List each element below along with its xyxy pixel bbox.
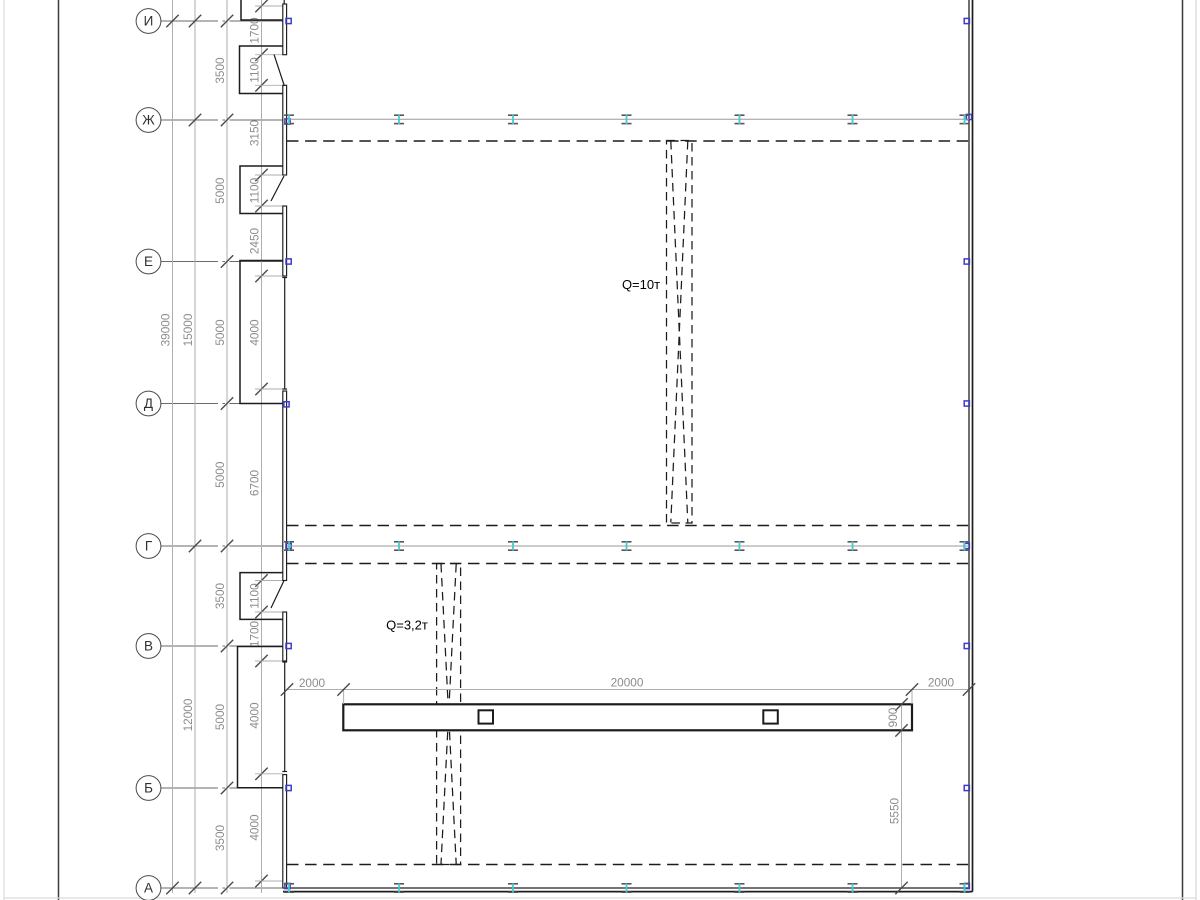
svg-text:И: И <box>144 14 154 29</box>
svg-text:Q=3,2т: Q=3,2т <box>386 618 428 633</box>
svg-text:2000: 2000 <box>299 676 326 690</box>
svg-text:4000: 4000 <box>248 814 262 841</box>
svg-text:2450: 2450 <box>248 227 262 254</box>
svg-text:5000: 5000 <box>213 319 227 346</box>
svg-text:1700: 1700 <box>248 17 262 44</box>
svg-text:900: 900 <box>886 707 900 727</box>
svg-text:1100: 1100 <box>248 57 262 83</box>
svg-text:3150: 3150 <box>248 119 262 146</box>
svg-text:3500: 3500 <box>213 57 227 84</box>
svg-text:А: А <box>144 881 153 896</box>
svg-text:4000: 4000 <box>248 702 262 729</box>
svg-text:3500: 3500 <box>213 582 227 609</box>
svg-text:1100: 1100 <box>248 177 262 203</box>
svg-text:Ж: Ж <box>142 113 155 128</box>
svg-text:12000: 12000 <box>181 698 195 731</box>
svg-text:Б: Б <box>144 781 153 796</box>
svg-text:2000: 2000 <box>928 676 955 690</box>
svg-text:5550: 5550 <box>888 797 902 824</box>
svg-text:3500: 3500 <box>213 824 227 851</box>
svg-text:6700: 6700 <box>248 469 262 496</box>
svg-text:Е: Е <box>144 254 153 269</box>
svg-text:4000: 4000 <box>248 319 262 346</box>
svg-text:5000: 5000 <box>213 177 227 204</box>
svg-text:1100: 1100 <box>248 583 262 609</box>
svg-text:20000: 20000 <box>611 676 644 690</box>
svg-text:В: В <box>144 639 153 654</box>
svg-text:Д: Д <box>144 396 153 411</box>
svg-text:Г: Г <box>145 539 153 554</box>
svg-text:39000: 39000 <box>159 313 173 346</box>
svg-text:Q=10т: Q=10т <box>622 277 660 292</box>
svg-text:5000: 5000 <box>213 703 227 730</box>
svg-text:15000: 15000 <box>181 313 195 346</box>
svg-text:5000: 5000 <box>213 461 227 488</box>
svg-text:1700: 1700 <box>248 620 262 647</box>
